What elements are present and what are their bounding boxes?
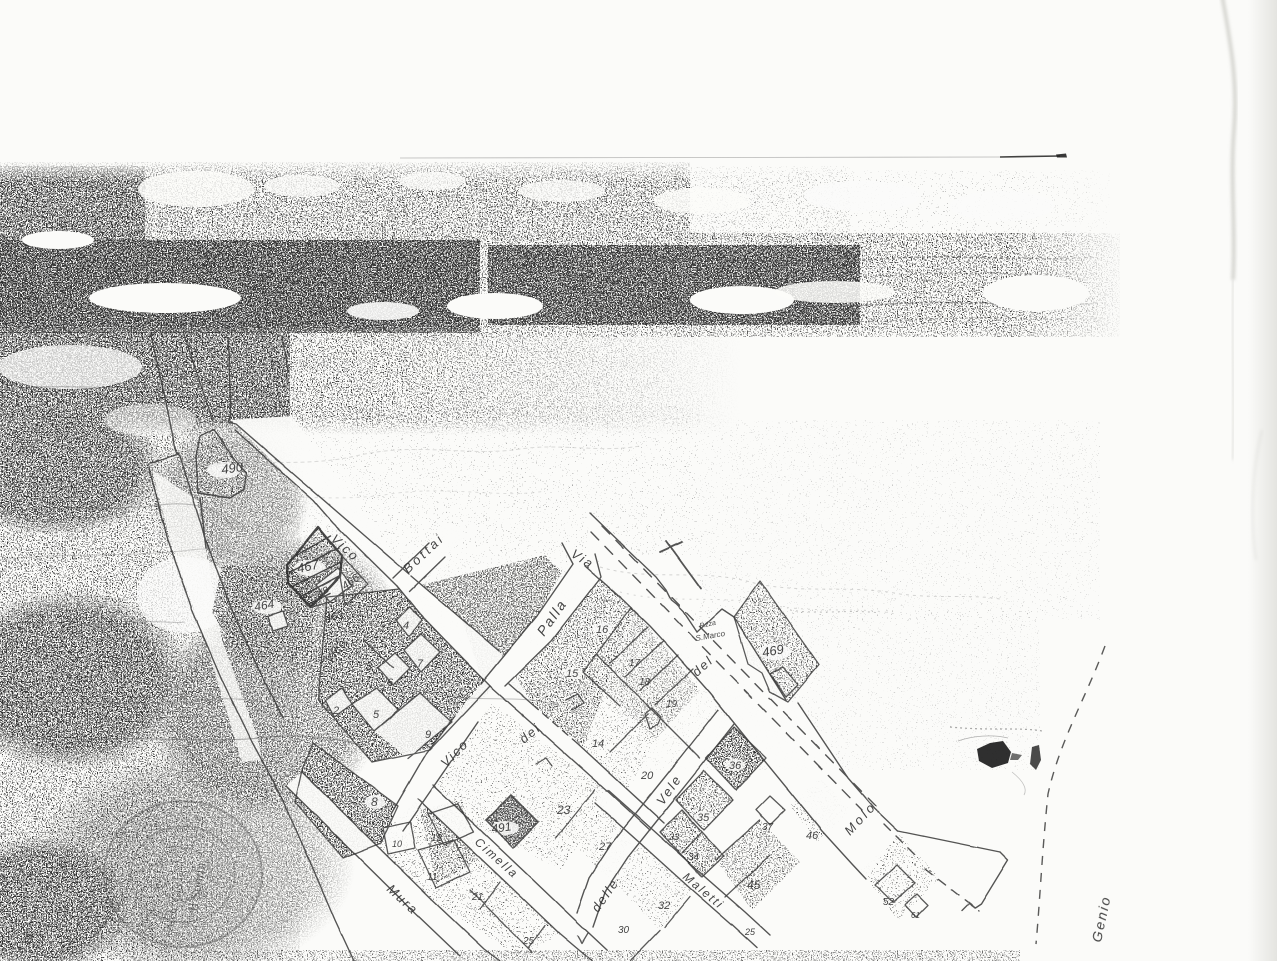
svg-text:34: 34 <box>688 852 700 863</box>
svg-text:21: 21 <box>471 892 483 903</box>
svg-text:8: 8 <box>371 795 378 809</box>
svg-text:32: 32 <box>658 900 670 912</box>
svg-text:23: 23 <box>556 803 571 817</box>
svg-text:36: 36 <box>729 760 742 772</box>
svg-text:11: 11 <box>427 872 437 883</box>
svg-text:15: 15 <box>566 668 579 680</box>
svg-text:12: 12 <box>431 833 443 844</box>
svg-text:20: 20 <box>640 770 654 782</box>
svg-text:4: 4 <box>403 620 409 632</box>
svg-text:45: 45 <box>747 878 761 892</box>
svg-text:33: 33 <box>669 832 679 842</box>
svg-text:491: 491 <box>490 819 512 836</box>
svg-text:37: 37 <box>762 822 774 833</box>
svg-text:9: 9 <box>425 729 431 741</box>
svg-text:3: 3 <box>366 661 373 673</box>
svg-text:7: 7 <box>417 658 424 670</box>
svg-text:0: 0 <box>24 931 33 948</box>
svg-text:6: 6 <box>387 677 394 689</box>
svg-text:5: 5 <box>373 709 380 721</box>
svg-text:52: 52 <box>883 897 895 908</box>
svg-text:61: 61 <box>911 911 920 920</box>
svg-text:2: 2 <box>332 705 339 717</box>
svg-text:17: 17 <box>629 658 641 669</box>
svg-text:35: 35 <box>697 812 710 824</box>
svg-text:30: 30 <box>618 925 630 936</box>
svg-text:14: 14 <box>592 738 604 750</box>
svg-text:46: 46 <box>806 830 819 842</box>
svg-text:25: 25 <box>744 927 756 937</box>
svg-text:19: 19 <box>666 699 678 710</box>
svg-text:16: 16 <box>596 624 609 636</box>
svg-text:10: 10 <box>392 839 402 849</box>
svg-text:18: 18 <box>639 677 651 688</box>
svg-text:25: 25 <box>522 936 535 947</box>
svg-text:490: 490 <box>220 459 244 477</box>
svg-text:27: 27 <box>598 841 612 853</box>
